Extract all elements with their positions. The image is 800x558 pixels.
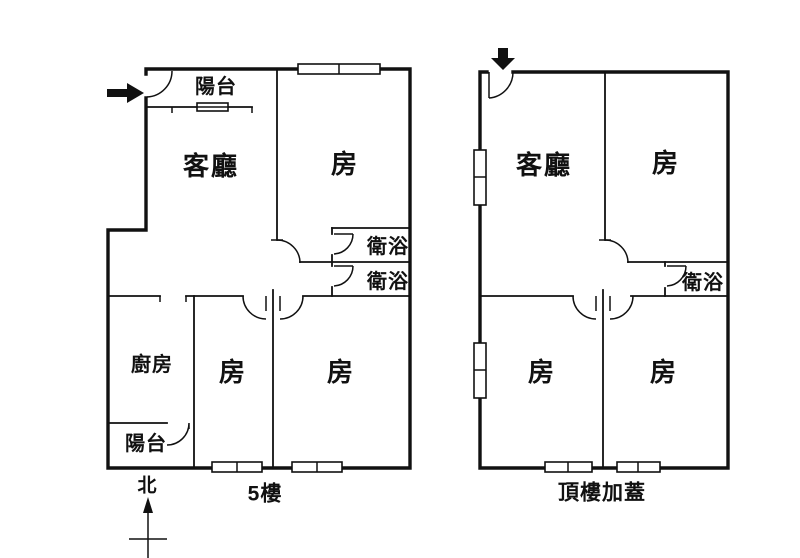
room-left-door — [243, 296, 266, 319]
room-label-bedroom-bl: 房 — [219, 359, 247, 385]
entry-door-arc — [147, 71, 172, 97]
room-label-balcony-top: 陽台 — [195, 77, 237, 97]
floorplan-page: 陽台 客廳 房 衛浴 衛浴 廚房 房 房 陽台 北 5樓 客廳 房 衛浴 房 房… — [0, 0, 800, 558]
room-label-bath-upper: 衛浴 — [367, 237, 409, 257]
doors — [147, 71, 353, 445]
room-right-door — [280, 296, 303, 319]
living-door-arc — [277, 240, 300, 263]
room-label-bath: 衛浴 — [682, 273, 724, 293]
room-label-bedroom-upper: 房 — [331, 151, 359, 177]
room-right-door — [610, 296, 633, 319]
windows — [474, 150, 660, 472]
interior-walls — [480, 72, 728, 468]
room-label-living: 客廳 — [183, 153, 239, 179]
room-label-bedroom-upper: 房 — [652, 150, 680, 176]
outer-walls — [108, 69, 410, 468]
bath-upper-door — [334, 234, 353, 254]
plan-caption-5f: 5樓 — [248, 484, 283, 505]
room-label-bedroom-br: 房 — [650, 359, 678, 385]
plan-caption-rooftop: 頂樓加蓋 — [558, 483, 646, 504]
balcony-door — [167, 423, 189, 445]
room-label-living: 客廳 — [516, 152, 572, 178]
living-door-arc — [605, 240, 628, 263]
room-label-bedroom-bl: 房 — [528, 359, 556, 385]
entry-arrow-icon — [491, 48, 515, 70]
room-label-bath-lower: 衛浴 — [367, 272, 409, 292]
room-label-bedroom-br: 房 — [327, 359, 355, 385]
room-left-door — [573, 296, 596, 319]
room-label-balcony-bottom: 陽台 — [125, 434, 167, 454]
north-label: 北 — [137, 477, 156, 496]
room-label-kitchen: 廚房 — [131, 355, 173, 375]
north-arrow-icon — [129, 497, 167, 558]
interior-walls — [108, 69, 410, 468]
entry-arrow-icon — [107, 83, 144, 103]
entry-door — [489, 72, 513, 98]
doors — [489, 72, 686, 319]
outer-walls — [480, 72, 728, 468]
bath-lower-door — [334, 266, 353, 286]
floor-plan-rooftop — [474, 48, 728, 472]
